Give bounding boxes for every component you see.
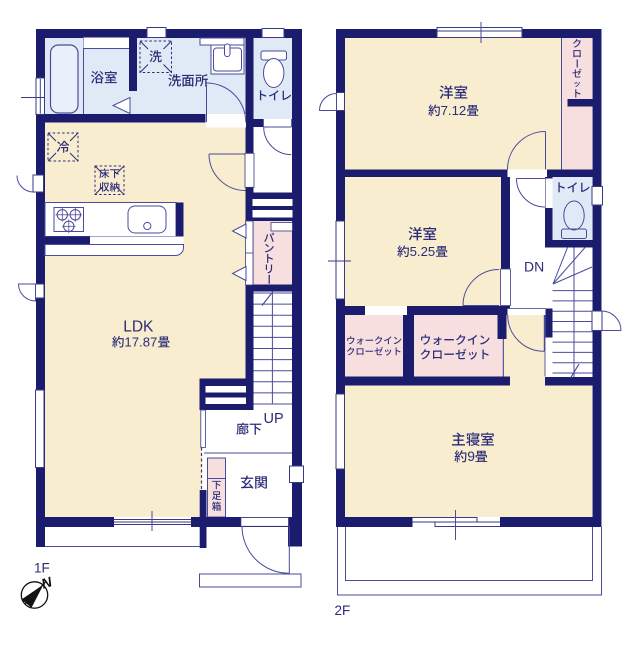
svg-text:17.87: 17.87	[124, 335, 157, 350]
svg-text:2F: 2F	[335, 603, 351, 618]
svg-text:9: 9	[467, 449, 475, 464]
svg-text:UP: UP	[264, 411, 284, 427]
svg-text:LDK: LDK	[123, 319, 154, 336]
svg-text:DN: DN	[524, 259, 544, 275]
svg-text:5.25: 5.25	[410, 244, 436, 259]
svg-text:7.12: 7.12	[441, 103, 467, 118]
